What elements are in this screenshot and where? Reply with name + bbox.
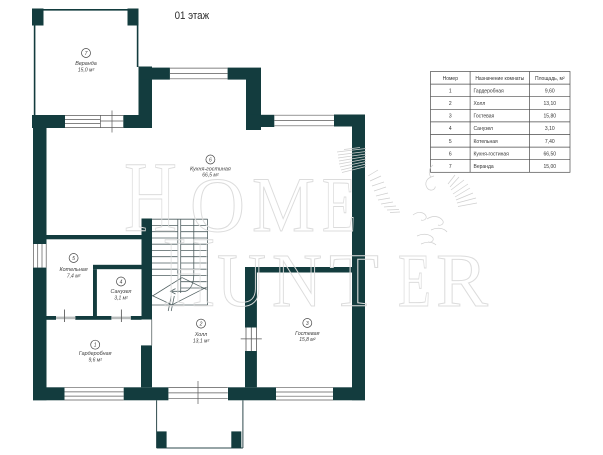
svg-text:3,10: 3,10: [545, 126, 555, 132]
svg-text:Площадь, м²: Площадь, м²: [535, 76, 565, 82]
svg-text:Гостевая: Гостевая: [295, 331, 320, 337]
svg-text:H: H: [163, 216, 215, 328]
svg-text:13,1 м²: 13,1 м²: [193, 338, 210, 344]
svg-text:Санузел: Санузел: [474, 126, 494, 132]
svg-text:Гардеробная: Гардеробная: [79, 351, 112, 357]
svg-text:15,00: 15,00: [544, 164, 557, 170]
svg-text:Санузел: Санузел: [111, 289, 132, 295]
svg-text:N: N: [272, 239, 322, 323]
svg-text:5: 5: [72, 256, 75, 262]
svg-text:15,80: 15,80: [544, 114, 557, 120]
svg-text:Назначение комнаты: Назначение комнаты: [475, 76, 524, 82]
svg-text:4: 4: [449, 126, 452, 132]
svg-text:5: 5: [449, 139, 452, 145]
svg-text:E: E: [398, 239, 431, 323]
svg-text:Холл: Холл: [474, 101, 486, 107]
svg-text:9,60: 9,60: [545, 88, 555, 94]
svg-text:Котельная: Котельная: [59, 267, 87, 273]
svg-text:E: E: [322, 161, 356, 248]
svg-text:R: R: [436, 239, 488, 323]
svg-text:Кухня-гостиная: Кухня-гостиная: [474, 151, 510, 157]
svg-text:13,10: 13,10: [544, 101, 557, 107]
svg-text:Номер: Номер: [443, 76, 459, 82]
svg-text:3,1 м²: 3,1 м²: [114, 295, 128, 301]
svg-text:T: T: [329, 239, 379, 323]
svg-text:U: U: [217, 239, 266, 323]
svg-text:66,50: 66,50: [544, 151, 557, 157]
svg-text:2: 2: [449, 101, 452, 107]
svg-text:Холл: Холл: [194, 332, 207, 338]
svg-text:3: 3: [449, 114, 452, 120]
svg-text:Веранда: Веранда: [75, 61, 97, 67]
svg-text:1: 1: [449, 88, 452, 94]
svg-text:7,40: 7,40: [545, 139, 555, 145]
svg-text:7: 7: [85, 51, 88, 57]
svg-text:15,0 м²: 15,0 м²: [78, 67, 95, 73]
svg-text:Котельная: Котельная: [474, 139, 498, 145]
svg-text:7: 7: [449, 164, 452, 170]
svg-text:Веранда: Веранда: [474, 164, 494, 170]
svg-text:15,8 м²: 15,8 м²: [299, 337, 316, 343]
svg-text:M: M: [252, 161, 315, 248]
svg-text:01 этаж: 01 этаж: [175, 10, 210, 22]
svg-text:Гостевая: Гостевая: [474, 114, 495, 120]
svg-text:Гардеробная: Гардеробная: [474, 88, 505, 94]
svg-text:6: 6: [449, 151, 452, 157]
svg-text:4: 4: [120, 280, 123, 286]
svg-text:7,4 м²: 7,4 м²: [67, 273, 81, 279]
svg-text:9,6 м²: 9,6 м²: [88, 357, 102, 363]
svg-text:1: 1: [94, 343, 97, 349]
